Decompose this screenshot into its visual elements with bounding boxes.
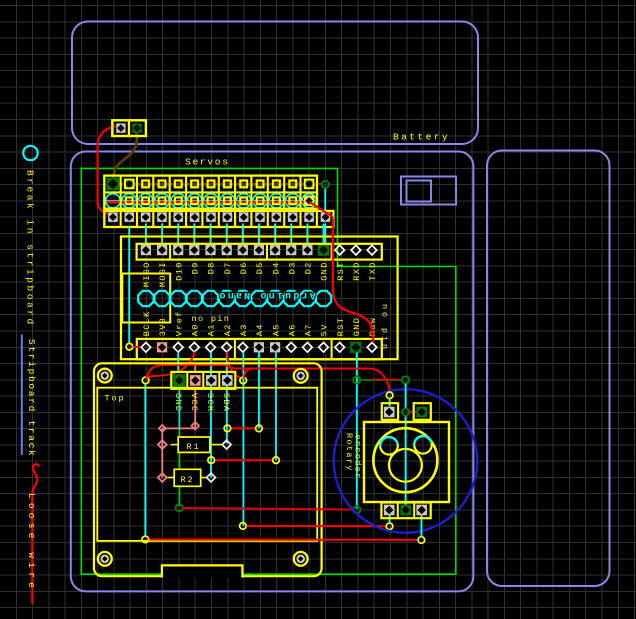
svg-text:A2: A2	[223, 323, 233, 336]
svg-text:R2: R2	[181, 475, 195, 485]
svg-text:Servos: Servos	[185, 157, 230, 168]
svg-text:Break in stripboard: Break in stripboard	[24, 170, 35, 327]
svg-text:D7: D7	[223, 261, 233, 274]
svg-text:Vref: Vref	[174, 310, 184, 336]
svg-text:GND: GND	[352, 317, 362, 336]
svg-text:TXD: TXD	[368, 261, 378, 280]
svg-text:Battery: Battery	[393, 132, 450, 143]
svg-text:Stripboard track: Stripboard track	[26, 339, 37, 457]
svg-text:A4: A4	[255, 323, 265, 336]
svg-text:BCLK: BCLK	[142, 310, 152, 336]
svg-text:GND: GND	[320, 261, 330, 280]
svg-text:D4: D4	[271, 261, 281, 274]
svg-text:D10: D10	[174, 261, 184, 280]
svg-text:Top: Top	[105, 394, 126, 404]
svg-text:RST: RST	[336, 261, 346, 280]
svg-text:D8: D8	[207, 261, 217, 274]
svg-text:D6: D6	[239, 261, 249, 274]
svg-text:A3: A3	[239, 323, 249, 336]
svg-text:A1: A1	[207, 323, 217, 336]
svg-text:A6: A6	[287, 323, 297, 336]
svg-text:D5: D5	[255, 261, 265, 274]
svg-text:MOSI: MOSI	[158, 261, 168, 287]
svg-text:RST: RST	[336, 317, 346, 336]
svg-text:D3: D3	[287, 261, 297, 274]
svg-text:SCK: SCK	[205, 393, 215, 412]
svg-text:RXD: RXD	[352, 261, 362, 280]
svg-text:Rotary: Rotary	[344, 433, 354, 472]
svg-text:GND: GND	[173, 393, 183, 412]
svg-text:R1: R1	[187, 442, 201, 452]
svg-text:A5: A5	[271, 323, 281, 336]
svg-text:no pin: no pin	[380, 304, 390, 352]
svg-text:encoder: encoder	[352, 435, 362, 480]
svg-text:D9: D9	[191, 261, 201, 274]
svg-text:VCC: VCC	[189, 393, 199, 412]
svg-text:Arduino Nano: Arduino Nano	[217, 289, 315, 301]
svg-text:3V3: 3V3	[158, 317, 168, 336]
svg-text:5V: 5V	[320, 323, 330, 336]
svg-text:A0: A0	[191, 323, 201, 336]
svg-text:MISO: MISO	[142, 261, 152, 287]
svg-text:A7: A7	[304, 323, 314, 336]
svg-text:no pin: no pin	[192, 314, 231, 324]
svg-text:D2: D2	[304, 261, 314, 274]
svg-text:Loose wire: Loose wire	[26, 493, 37, 592]
svg-text:SDA: SDA	[221, 393, 231, 412]
